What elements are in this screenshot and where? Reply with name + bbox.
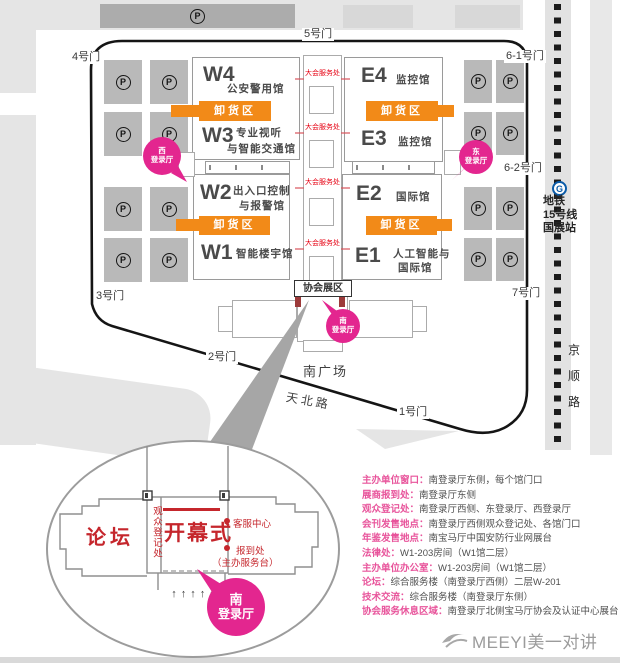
- registration-east-line2: 登录厅: [465, 157, 488, 166]
- gate-label-6-2: 6-2号门: [502, 162, 544, 175]
- parking-spot: P: [150, 60, 188, 104]
- info-list: 主办单位窗口：南登录厅东侧，每个馆门口展商报到处：南登录厅东侧观众登记处：南登录…: [362, 474, 620, 620]
- opening-ceremony-label: 开幕式: [164, 517, 233, 547]
- jingshun-char: 京: [567, 341, 581, 358]
- info-row-label: 观众登记处：: [362, 504, 419, 515]
- info-row-value: 南登录厅东侧: [419, 490, 476, 501]
- unloading-area-w4: 卸货区: [199, 101, 271, 121]
- parking-icon: P: [503, 126, 518, 141]
- association-zone-box: 协会展区: [294, 280, 352, 297]
- parking-icon: P: [503, 74, 518, 89]
- south-hall-line2: 登录厅: [218, 608, 254, 622]
- registration-west-line2: 登录厅: [151, 156, 174, 165]
- gate-label-1: 1号门: [397, 406, 429, 419]
- parking-icon: P: [116, 127, 131, 142]
- info-row-value: W1-203房间（W1馆二层）: [438, 563, 552, 574]
- south-square-label: 南广场: [303, 361, 348, 380]
- road-bottom-edge: [0, 657, 620, 663]
- door-marker: [295, 297, 301, 307]
- tianbei-road-label: 天北路: [285, 388, 332, 413]
- parking-spot: P: [104, 238, 142, 282]
- parking-icon: P: [162, 202, 177, 217]
- info-row-label: 法律处：: [362, 548, 400, 559]
- unloading-area-w2: 卸货区: [199, 216, 270, 235]
- gate-label-4: 4号门: [70, 51, 102, 64]
- info-row-label: 协会服务休息区域：: [362, 606, 448, 617]
- info-row: 论坛：综合服务楼（南登录厅西侧）二层W-201: [362, 576, 620, 591]
- unloading-tab: [436, 105, 454, 117]
- stage-bar: [163, 508, 220, 511]
- hall-name-w3: 专业视听: [236, 128, 282, 139]
- info-row-label: 主办单位窗口：: [362, 475, 429, 486]
- hall-code-w1: W1: [201, 242, 233, 263]
- registration-west-badge: 西 登录厅: [143, 137, 181, 175]
- info-row: 年鉴发售地点：南宝马厅中国安防行业网展台: [362, 532, 620, 547]
- info-row-label: 论坛：: [362, 577, 391, 588]
- info-row-value: 南登录厅西侧观众登记处、各馆门口: [429, 519, 581, 530]
- parking-spot: P: [464, 60, 492, 103]
- parking-spot: P: [496, 187, 524, 230]
- road-left-lower: [0, 115, 36, 445]
- info-row-value: 南宝马厅中国安防行业网展台: [429, 533, 553, 544]
- metro-station-name: 国展站: [543, 222, 577, 236]
- road-triangle: [356, 429, 459, 449]
- venue-map-canvas: P PPPPPPPPPPPPPPPP 卸货区 卸货区 卸货区 卸货区 协会展区: [0, 0, 620, 663]
- parking-icon: P: [116, 75, 131, 90]
- info-row-label: 主办单位办公室：: [362, 563, 438, 574]
- unloading-tab: [171, 105, 201, 117]
- registration-south-line2: 登录厅: [332, 326, 355, 335]
- south-hall-line1: 南: [229, 593, 242, 608]
- metro-line-name: 地铁: [543, 195, 577, 209]
- unloading-area-e2: 卸货区: [366, 216, 437, 235]
- service-office-label: 大会服务处: [303, 179, 342, 186]
- road-right-edge: [590, 0, 612, 455]
- corridor-room: [309, 140, 334, 168]
- hall-name-e1: 人工智能与: [393, 249, 451, 260]
- service-office-label: 大会服务处: [303, 70, 342, 77]
- hall-code-e2: E2: [356, 183, 382, 204]
- info-row-value: 综合服务楼（南登录厅西侧）二层W-201: [391, 577, 561, 588]
- service-center-label: 客服中心: [233, 516, 271, 530]
- gate-label-3: 3号门: [94, 290, 126, 303]
- gate-label-6-1: 6-1号门: [504, 50, 546, 63]
- checkin-sub-label: （主办服务台）: [212, 555, 279, 569]
- info-row-value: 南登录厅北侧宝马厅协会及认证中心展台: [448, 606, 619, 617]
- corridor-room: [309, 256, 334, 282]
- info-row-label: 年鉴发售地点：: [362, 533, 429, 544]
- hall-connector-east: [352, 161, 435, 174]
- parking-icon: P: [503, 201, 518, 216]
- parking-spot: P: [150, 238, 188, 282]
- info-row-label: 展商报到处：: [362, 490, 419, 501]
- parking-spot: P: [464, 238, 492, 281]
- info-row-value: 南登录厅西侧、东登录厅、西登录厅: [419, 504, 571, 515]
- door-icons: [143, 491, 229, 500]
- info-row-value: W1-203房间（W1馆二层）: [400, 548, 514, 559]
- metro-icon: G: [552, 181, 567, 196]
- road-top-segment: [455, 5, 520, 28]
- parking-spot: P: [464, 187, 492, 230]
- road-southwest: [26, 368, 215, 467]
- parking-icon: P: [471, 126, 486, 141]
- parking-icon: P: [116, 253, 131, 268]
- parking-icon: P: [503, 252, 518, 267]
- jingshun-road-label: 京 顺 路: [567, 341, 581, 419]
- hall-name-w1: 智能楼宇馆: [236, 249, 294, 260]
- info-row-label: 会刊发售地点：: [362, 519, 429, 530]
- info-row: 技术交流：综合服务楼（南登录厅东侧）: [362, 591, 620, 606]
- parking-icon: P: [162, 75, 177, 90]
- south-building-west-wing: [232, 300, 297, 338]
- hall-name-e3: 监控馆: [398, 137, 433, 148]
- parking-icon: P: [471, 201, 486, 216]
- hall-name-w3: 与智能交通馆: [227, 144, 296, 155]
- brand-wordmark: MEEYI美一对讲: [472, 628, 597, 653]
- hall-code-w2: W2: [200, 182, 232, 203]
- info-row: 主办单位办公室：W1-203房间（W1馆二层）: [362, 562, 620, 577]
- jingshun-char: 顺: [567, 367, 581, 384]
- info-row: 会刊发售地点：南登录厅西侧观众登记处、各馆门口: [362, 518, 620, 533]
- info-row: 主办单位窗口：南登录厅东侧，每个馆门口: [362, 474, 620, 489]
- parking-spot: P: [496, 60, 524, 103]
- info-row-value: 综合服务楼（南登录厅东侧）: [410, 592, 534, 603]
- hall-code-e3: E3: [361, 128, 387, 149]
- hall-code-w4: W4: [203, 64, 235, 85]
- hall-code-e1: E1: [355, 245, 381, 266]
- registration-east-badge: 东 登录厅: [459, 140, 493, 174]
- checkin-dot: [224, 545, 230, 551]
- hall-name-e2: 国际馆: [396, 192, 431, 203]
- info-row: 观众登记处：南登录厅西侧、东登录厅、西登录厅: [362, 503, 620, 518]
- hall-connector-west: [205, 161, 290, 174]
- hall-code-e4: E4: [361, 65, 387, 86]
- unloading-tab: [176, 219, 201, 231]
- gate-label-5: 5号门: [302, 28, 334, 41]
- hall-name-e4: 监控馆: [396, 75, 431, 86]
- parking-icon: P: [116, 202, 131, 217]
- jingshun-char: 路: [567, 393, 581, 410]
- brand-swoosh-icon: [440, 629, 470, 651]
- unloading-area-e4: 卸货区: [366, 101, 438, 121]
- hall-name-w2: 出入口控制: [233, 186, 291, 197]
- parking-icon: P: [162, 253, 177, 268]
- parking-spot: P: [496, 238, 524, 281]
- info-row-label: 技术交流：: [362, 592, 410, 603]
- south-building-west-annex: [218, 306, 233, 332]
- info-row-value: 南登录厅东侧，每个馆门口: [429, 475, 543, 486]
- road-left-upper: [0, 0, 36, 93]
- south-hall-badge-large: 南 登录厅: [207, 578, 265, 636]
- hall-name-e1: 国际馆: [398, 263, 433, 274]
- service-office-label: 大会服务处: [303, 240, 342, 247]
- parking-icon: P: [471, 74, 486, 89]
- parking-strip-top: P: [100, 4, 295, 28]
- gate-label-2: 2号门: [206, 351, 238, 364]
- door-marker: [339, 297, 345, 307]
- parking-icon: P: [190, 9, 205, 24]
- unloading-tab: [435, 219, 452, 231]
- forum-label: 论坛: [86, 521, 134, 550]
- service-office-label: 大会服务处: [303, 124, 342, 131]
- road-top-segment: [343, 5, 413, 28]
- audience-registration-label: 观众登记处: [149, 506, 163, 559]
- metro-station-label: 地铁 15号线 国展站: [543, 195, 577, 236]
- parking-spot: P: [104, 112, 142, 156]
- parking-icon: P: [471, 252, 486, 267]
- info-row: 展商报到处：南登录厅东侧: [362, 489, 620, 504]
- info-row: 协会服务休息区域：南登录厅北侧宝马厅协会及认证中心展台: [362, 605, 620, 620]
- gate-label-7: 7号门: [510, 287, 542, 300]
- metro-line-number: 15号线: [543, 209, 577, 223]
- south-building-east-annex: [412, 306, 427, 332]
- hall-name-w2: 与报警馆: [239, 201, 285, 212]
- service-center-dot: [224, 518, 230, 524]
- corridor-room: [309, 198, 334, 226]
- corridor-room: [309, 86, 334, 114]
- parking-spot: P: [104, 187, 142, 231]
- parking-spot: P: [496, 112, 524, 155]
- info-row: 法律处：W1-203房间（W1馆二层）: [362, 547, 620, 562]
- hall-name-w4: 公安警用馆: [227, 84, 285, 95]
- parking-spot: P: [104, 60, 142, 104]
- registration-south-badge: 南 登录厅: [326, 309, 360, 343]
